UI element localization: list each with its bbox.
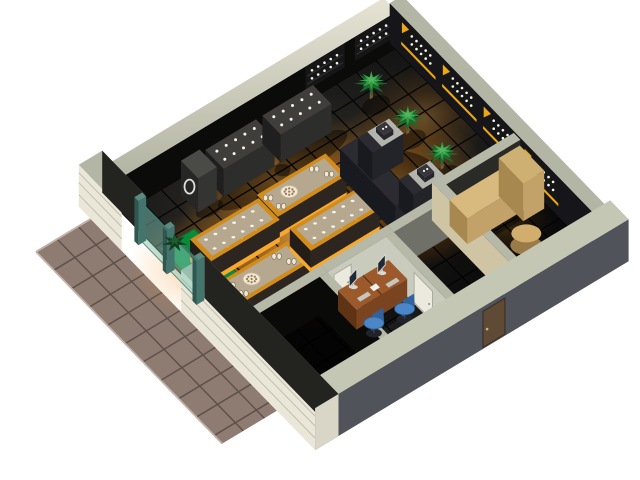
row-accent — [227, 246, 229, 248]
row-item — [313, 237, 317, 239]
shelf-item-dot — [506, 134, 509, 137]
counter-item-dot — [310, 93, 313, 96]
display-glyph — [277, 253, 281, 259]
shelf-item-dot — [336, 54, 339, 57]
plate-dot — [254, 280, 256, 282]
shelf-item-dot — [366, 36, 369, 39]
counter-item-dot — [291, 104, 294, 107]
row-item — [242, 216, 246, 218]
exterior-door-knob — [486, 328, 489, 331]
shelf-item-dot — [492, 127, 495, 130]
shelf-item-dot — [470, 104, 473, 107]
display-glyph — [269, 195, 273, 201]
shelf-item-dot — [465, 100, 468, 103]
register-dot — [426, 168, 428, 170]
shelf-item-dot — [470, 96, 473, 99]
row-item — [251, 210, 255, 212]
shelf-item-dot — [502, 129, 505, 132]
counter-item-dot — [272, 115, 275, 118]
plate-dot — [284, 191, 286, 193]
row-item — [222, 242, 226, 244]
register-dot — [423, 170, 425, 172]
entrance-frame-post-2-front-face — [197, 256, 205, 305]
shelf-item-dot — [317, 65, 320, 68]
shelf-item-dot — [452, 77, 455, 80]
plate-dot — [288, 191, 290, 193]
row-accent — [327, 235, 329, 237]
row-item — [341, 205, 345, 207]
shelf-item-dot — [424, 57, 427, 60]
counter-item-dot — [233, 152, 236, 155]
row-accent — [341, 227, 343, 229]
plate-dot — [247, 280, 249, 282]
shelf-item-dot — [379, 28, 382, 31]
shelf-item-dot — [360, 47, 363, 50]
plate-dot — [291, 188, 293, 190]
shelf-item-dot — [311, 77, 314, 80]
plate-dot — [251, 275, 253, 277]
counter-item-dot — [318, 101, 321, 104]
display-glyph — [244, 291, 248, 297]
row-item — [323, 217, 327, 219]
display-glyph — [276, 203, 280, 209]
register-dot — [382, 128, 384, 130]
display-glyph — [282, 203, 286, 209]
counter-item-dot — [225, 144, 228, 147]
entrance-frame-post-0-left-face — [134, 197, 138, 245]
counter-item-dot — [223, 158, 226, 161]
plate-dot — [251, 281, 253, 283]
plate-dot — [288, 187, 290, 189]
plate-dot — [285, 188, 287, 190]
display-glyph — [309, 166, 313, 172]
shelf-item-dot — [366, 44, 369, 47]
row-accent — [241, 237, 243, 239]
shelf-item-dot — [456, 82, 459, 85]
display-glyph — [272, 253, 276, 259]
plate-dot — [293, 191, 295, 193]
display-glyph — [324, 171, 328, 177]
shelf-item-dot — [411, 43, 414, 46]
row-item — [313, 222, 317, 224]
plate-dot — [288, 194, 290, 196]
display-glyph — [263, 195, 267, 201]
row-accent — [255, 229, 257, 231]
counter-item-dot — [300, 98, 303, 101]
shelf-item-dot — [411, 35, 414, 38]
counter-item-dot — [215, 150, 218, 153]
shelf-item-dot — [329, 66, 332, 69]
row-item — [250, 225, 254, 227]
row-item — [351, 200, 355, 202]
counter-item-dot — [280, 123, 283, 126]
row-item — [359, 209, 363, 211]
row-item — [332, 211, 336, 213]
shelf-item-dot — [552, 189, 555, 192]
plate-dot — [255, 278, 257, 280]
plate-dot — [247, 276, 249, 278]
shelf-item-dot — [336, 62, 339, 65]
plate-dot — [285, 193, 287, 195]
shelf-item-dot — [420, 45, 423, 48]
shelf-item-dot — [360, 39, 363, 42]
floorplan-stage — [0, 0, 640, 480]
row-item — [204, 238, 208, 240]
display-glyph — [292, 258, 296, 264]
scene-root — [36, 0, 632, 464]
stool-top — [511, 224, 541, 242]
shelf-item-dot — [323, 69, 326, 72]
shelf-item-dot — [317, 73, 320, 76]
row-item — [232, 222, 236, 224]
shelf-item-dot — [385, 32, 388, 35]
display-glyph — [330, 171, 334, 177]
corridor-door-handle — [428, 303, 430, 305]
display-glyph — [315, 166, 319, 172]
row-item — [241, 230, 245, 232]
shelf-item-dot — [547, 176, 550, 179]
shelf-item-dot — [497, 132, 500, 135]
shelf-item-dot — [465, 92, 468, 95]
counter-item-dot — [243, 133, 246, 136]
counter-item-dot — [234, 138, 237, 141]
plate-dot — [254, 276, 256, 278]
plate-dot — [251, 278, 253, 280]
counter-item-dot — [282, 110, 285, 113]
plate-dot — [291, 193, 293, 195]
row-item — [304, 228, 308, 230]
row-item — [341, 220, 345, 222]
shelf-item-dot — [429, 54, 432, 57]
counter-item-dot — [299, 112, 302, 115]
shelf-item-dot — [323, 61, 326, 64]
counter-item-dot — [251, 141, 254, 144]
row-item — [350, 214, 354, 216]
shelf-item-dot — [311, 69, 314, 72]
shelf-item-dot — [415, 40, 418, 43]
row-item — [322, 231, 326, 233]
floorplan-scene — [0, 0, 640, 480]
chair-seat — [395, 303, 415, 315]
shelf-item-dot — [552, 181, 555, 184]
shelf-item-dot — [372, 32, 375, 35]
row-item — [331, 225, 335, 227]
row-accent — [355, 218, 357, 220]
shelf-item-dot — [424, 49, 427, 52]
shelf-item-dot — [547, 184, 550, 187]
row-item — [223, 227, 227, 229]
shelf-item-dot — [372, 40, 375, 43]
shelf-item-dot — [461, 87, 464, 90]
shelf-item-dot — [492, 119, 495, 122]
counter-item-dot — [242, 146, 245, 149]
shelf-item-dot — [456, 90, 459, 93]
entrance-frame-post-1-left-face — [163, 226, 167, 274]
counter-item-dot — [253, 127, 256, 130]
display-glyph — [287, 258, 291, 264]
entrance-frame-post-2-left-face — [193, 257, 197, 305]
plate-dot — [246, 278, 248, 280]
register-dot — [385, 126, 387, 128]
row-item — [260, 219, 264, 221]
shelf-item-dot — [461, 95, 464, 98]
counter-item-dot — [308, 107, 311, 110]
shelf-item-dot — [329, 58, 332, 61]
row-item — [214, 233, 218, 235]
shelf-item-dot — [497, 124, 500, 127]
shelf-item-dot — [379, 36, 382, 39]
counter-item-dot — [290, 118, 293, 121]
row-item — [213, 247, 217, 249]
row-item — [231, 236, 235, 238]
chair-seat — [364, 317, 384, 329]
shelf-item-dot — [415, 48, 418, 51]
shelf-item-dot — [385, 24, 388, 27]
shelf-item-dot — [452, 85, 455, 88]
shelf-item-dot — [420, 53, 423, 56]
shelf-item-dot — [429, 62, 432, 65]
